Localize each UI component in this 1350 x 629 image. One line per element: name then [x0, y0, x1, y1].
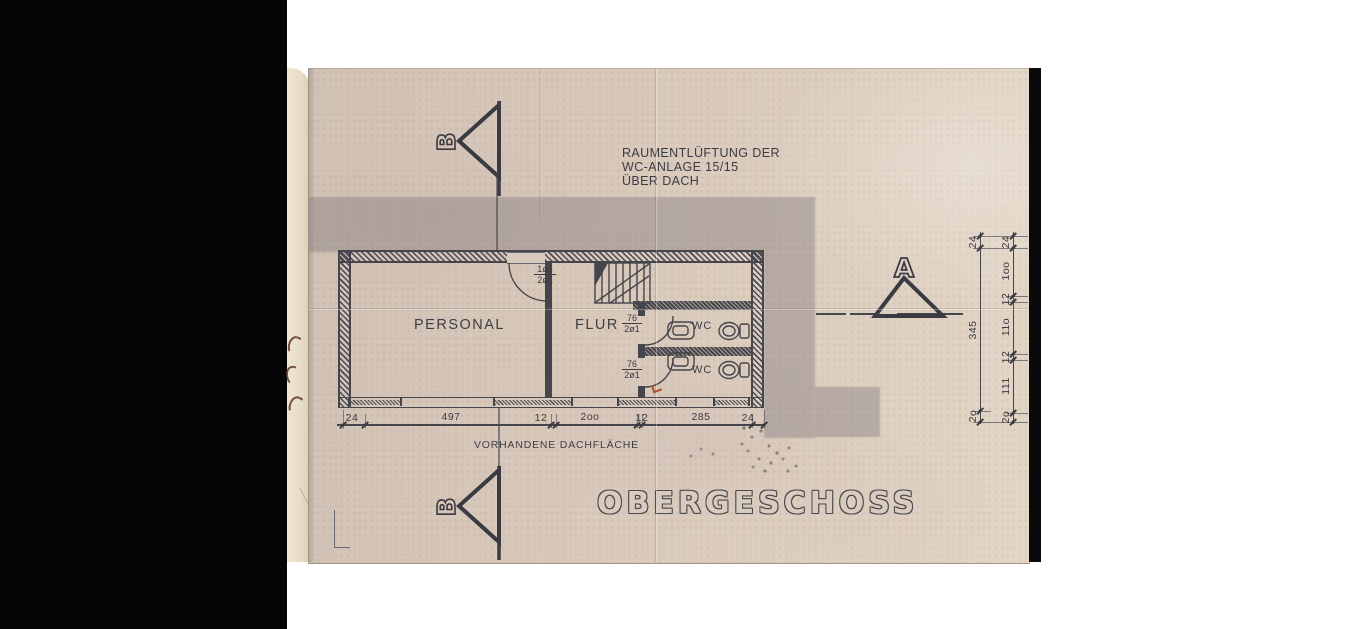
dim-value: 11o — [1000, 318, 1012, 336]
drawing-title: OBERGESCHOSS — [597, 486, 918, 521]
ink-speckles — [0, 0, 2, 2]
section-marker-b-top: B — [428, 96, 514, 206]
section-marker-b-bottom: B — [428, 464, 514, 574]
vent-note-line2: WC-ANLAGE 15/15 — [622, 160, 780, 174]
door-tag-width: 76 — [622, 313, 642, 324]
dim-value: 111 — [1000, 377, 1012, 394]
room-label-flur: FLUR — [575, 317, 619, 333]
dim-value: 1oo — [1000, 261, 1012, 280]
room-label-wc-upper: WC — [692, 320, 712, 332]
dim-line-right-outer — [1013, 232, 1014, 424]
door-tag-height: 2ø1 — [624, 370, 640, 380]
room-label-personal: PERSONAL — [414, 317, 505, 333]
dim-dot — [364, 424, 367, 427]
section-line-b-lower — [498, 408, 500, 468]
fold-crease-highlight — [656, 68, 657, 562]
vent-note: RAUMENTLÜFTUNG DER WC-ANLAGE 15/15 ÜBER … — [622, 146, 780, 188]
section-triangle-icon — [459, 470, 499, 542]
sheet-frame-line — [334, 547, 350, 548]
dim-value: 497 — [441, 411, 460, 423]
fold-crease-faint — [539, 68, 540, 218]
dim-value: 2o — [1000, 411, 1012, 424]
sheet-frame-line — [334, 510, 335, 548]
dim-value: 24 — [742, 412, 755, 424]
section-letter-a: A — [894, 254, 914, 284]
roof-shading-right — [764, 252, 815, 438]
dim-value: 12 — [1000, 351, 1012, 364]
dim-value: 12 — [636, 412, 649, 424]
dim-dot — [763, 424, 766, 427]
door-tag-height: 2ø1 — [624, 324, 640, 334]
roof-note: VORHANDENE DACHFLÄCHE — [474, 439, 639, 451]
dim-dot — [342, 424, 345, 427]
scan-black-edge-right — [1029, 68, 1041, 562]
roof-shading-band — [309, 197, 815, 252]
door-tag-hall: 1ø1 2ø1 — [534, 264, 556, 285]
vent-note-line3: ÜBER DACH — [622, 174, 780, 188]
dim-value: 12 — [1000, 293, 1012, 306]
door-tag-height: 2ø1 — [537, 275, 553, 285]
door-swing-wc-upper — [645, 316, 673, 345]
fold-crease-highlight — [308, 309, 1029, 310]
section-triangle-icon — [459, 105, 499, 177]
scanned-floor-plan-page: RAUMENTLÜFTUNG DER WC-ANLAGE 15/15 ÜBER … — [0, 0, 1350, 629]
dim-value: 24 — [346, 412, 359, 424]
vent-note-line1: RAUMENTLÜFTUNG DER — [622, 146, 780, 160]
dim-value: 24 — [967, 236, 979, 249]
door-tag-width: 1ø1 — [534, 264, 556, 275]
section-letter-b: B — [432, 497, 461, 516]
section-letter-b: B — [432, 132, 461, 151]
section-line-a-dash — [816, 313, 846, 315]
dim-value: 345 — [967, 320, 979, 339]
dim-value: 2o — [967, 410, 979, 423]
dim-value: 285 — [691, 411, 710, 423]
door-tag-width: 76 — [622, 359, 642, 370]
dim-dot — [555, 424, 558, 427]
dim-value: 2oo — [580, 411, 599, 423]
dim-line-right-inner — [980, 232, 981, 424]
door-tag-wc-upper: 76 2ø1 — [622, 313, 642, 334]
roof-shading-foot — [815, 387, 880, 437]
dim-value: 12 — [535, 412, 548, 424]
dim-value: 24 — [1000, 236, 1012, 249]
room-label-wc-lower: WC — [692, 364, 712, 376]
scan-black-margin-left — [0, 0, 287, 629]
paper-left-shadow — [309, 68, 315, 562]
door-tag-wc-lower: 76 2ø1 — [622, 359, 642, 380]
